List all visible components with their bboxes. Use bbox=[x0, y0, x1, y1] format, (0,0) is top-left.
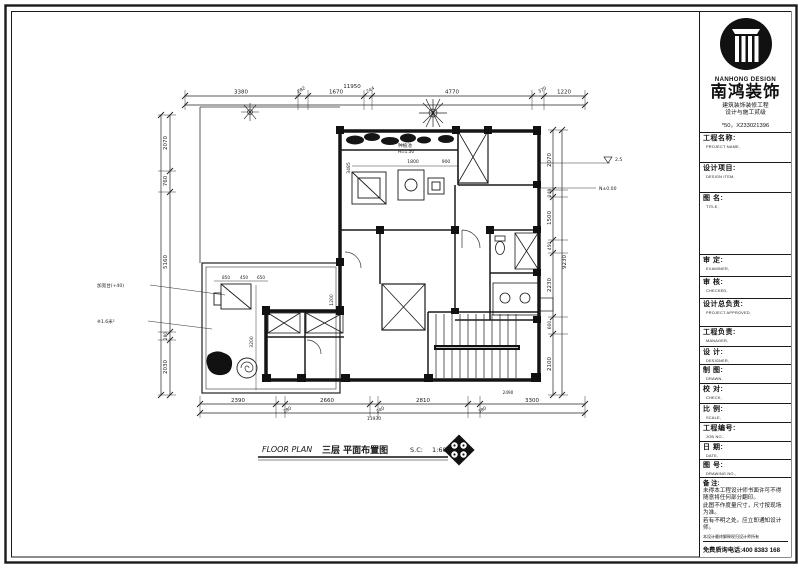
field-label-en: CHECKED, bbox=[706, 288, 788, 293]
terrace-plants bbox=[207, 351, 258, 378]
dim-label: 280 bbox=[163, 332, 169, 341]
field-label-cn: 工程名称: bbox=[703, 135, 788, 143]
dim-label: 2230 bbox=[547, 278, 553, 292]
dim-label: 1220 bbox=[557, 90, 571, 96]
dim-label: 1200 bbox=[329, 294, 335, 306]
field-label-cn: 设计总负责: bbox=[703, 301, 788, 309]
dim-label: 2100 bbox=[547, 357, 553, 371]
field-label-en: TITLE, bbox=[706, 204, 788, 209]
field-label-cn: 工程编号: bbox=[703, 425, 788, 433]
field-project-name: 工程名称: PROJECT NAME, bbox=[700, 133, 791, 163]
note-line: 为准。 bbox=[703, 510, 788, 517]
notes-title: 备 注: bbox=[703, 480, 788, 488]
field-label-en: EXAMINER, bbox=[706, 266, 788, 271]
dim-label-overall: 11950 bbox=[343, 84, 361, 90]
note-line: 师。 bbox=[703, 525, 788, 532]
dim-label: 600 bbox=[547, 321, 553, 330]
field-label-cn: 工程负责: bbox=[703, 329, 788, 337]
bathroom-fixtures bbox=[493, 233, 553, 315]
cert-line-2: 设计与施工贰级 bbox=[700, 110, 791, 117]
field-label-cn: 设 计: bbox=[703, 349, 788, 357]
hotline-phone: 免费质询电话:400 8383 168 bbox=[703, 541, 788, 555]
dim-labels-right: 2070 240 1500 450 2230 600 2100 9230 bbox=[547, 153, 568, 371]
dim-label: 280 bbox=[282, 405, 293, 415]
tree-symbol-small bbox=[241, 103, 259, 121]
annotation-planter-level: H=1.50 bbox=[398, 149, 414, 154]
field-designer: 设 计: DESIGNER, bbox=[700, 347, 791, 365]
dim-label: 450 bbox=[240, 275, 248, 280]
dim-label: 2660 bbox=[320, 398, 334, 404]
title-block: NANHONG DESIGN 南鸿装饰 建筑装饰装修工程 设计与施工贰级 *50… bbox=[699, 12, 791, 557]
field-label-cn: 审 核: bbox=[703, 279, 788, 287]
field-design-item: 设计项目: DESIGN ITEM, bbox=[700, 163, 791, 193]
dim-label: 850 bbox=[222, 275, 230, 280]
logo-section: NANHONG DESIGN 南鸿装饰 建筑装饰装修工程 设计与施工贰级 *50… bbox=[700, 12, 791, 133]
dim-labels-left: 2070 760 5160 280 2030 bbox=[163, 136, 169, 374]
field-label-cn: 设计项目: bbox=[703, 165, 788, 173]
dim-label: 2390 bbox=[231, 398, 245, 404]
field-examiner: 审 定: EXAMINER, bbox=[700, 255, 791, 277]
note-line: 随意将任何部分翻印。 bbox=[703, 495, 788, 502]
field-label-en: DRAWN, bbox=[706, 376, 788, 381]
notes-fine-print: 本设计最终解释权归设计师所有 bbox=[703, 534, 788, 540]
dim-label: 3300 bbox=[525, 398, 539, 404]
note-line: 若有不明之处。应立即通知设计 bbox=[703, 518, 788, 525]
annotation-left-1: 加宽台(+40) bbox=[97, 282, 124, 289]
dim-label: 282 bbox=[296, 85, 307, 95]
eave-lines bbox=[200, 107, 340, 263]
tree-symbol-large bbox=[419, 99, 447, 127]
annotation-level-1: 2.5 bbox=[615, 157, 622, 163]
drawing-sheet: 3380 282 1670 244 4770 370 1220 11950 20… bbox=[0, 0, 802, 568]
dim-labels-top: 3380 282 1670 244 4770 370 1220 11950 bbox=[234, 84, 571, 96]
dim-label: 900 bbox=[442, 159, 451, 165]
dim-label: 380 bbox=[477, 405, 488, 415]
annotation-level-2: N±0.00 bbox=[599, 186, 617, 192]
field-manager: 工程负责: MANAGER, bbox=[700, 327, 791, 347]
dim-labels-bottom: 2390 280 2660 240 2810 380 3300 11930 bbox=[231, 398, 539, 422]
caption-title: 三层 平面布置图 bbox=[322, 444, 388, 456]
staircase bbox=[434, 314, 520, 378]
dim-label: 2070 bbox=[547, 153, 553, 167]
field-checked: 审 核: CHECKED, bbox=[700, 277, 791, 299]
field-label-cn: 图 名: bbox=[703, 195, 788, 203]
dim-label: 3485 bbox=[346, 162, 352, 174]
field-label-en: CHECK, bbox=[706, 395, 788, 400]
field-label-cn: 校 对: bbox=[703, 386, 788, 394]
field-label-en: PROJECT NAME, bbox=[706, 144, 788, 149]
field-job-no: 工程编号: JOB NO., bbox=[700, 423, 791, 442]
terrace-desk bbox=[214, 284, 251, 309]
dim-label: 3200 bbox=[249, 336, 255, 348]
interior-walls bbox=[266, 131, 539, 380]
dim-label: 650 bbox=[257, 275, 265, 280]
annotations: 加宽台(+40) ※1.6米² 2.5 N±0.00 种植池 H=1.50 bbox=[97, 142, 622, 329]
dim-label: 2490 bbox=[503, 390, 514, 395]
dim-label: 5160 bbox=[163, 255, 169, 269]
exterior-walls bbox=[266, 131, 539, 380]
door-swings bbox=[307, 230, 480, 354]
field-drawing-no: 图 号: DRAWING NO., bbox=[700, 460, 791, 478]
dim-label-overall: 11930 bbox=[367, 416, 381, 422]
shaft-elevator bbox=[458, 131, 488, 183]
dim-label: 2810 bbox=[416, 398, 430, 404]
field-label-cn: 图 号: bbox=[703, 462, 788, 470]
caption-prefix: FLOOR PLAN bbox=[262, 445, 312, 454]
plan-caption: FLOOR PLAN 三层 平面布置图 S.C: 1:60 bbox=[258, 434, 475, 465]
field-label-en: DESIGN ITEM, bbox=[706, 174, 788, 179]
brand-name-cn: 南鸿装饰 bbox=[700, 83, 791, 101]
field-label-en: MANAGER, bbox=[706, 338, 788, 343]
dim-label: 1670 bbox=[329, 90, 343, 96]
field-label-cn: 审 定: bbox=[703, 257, 788, 265]
field-project-approved: 设计总负责: PROJECT APPROVED, bbox=[700, 299, 791, 327]
field-label-en: DESIGNER, bbox=[706, 358, 788, 363]
dim-label: 2070 bbox=[163, 136, 169, 150]
field-label-en: PROJECT APPROVED, bbox=[706, 310, 788, 315]
field-title: 图 名: TITLE, bbox=[700, 193, 791, 255]
dim-label: 3380 bbox=[234, 90, 248, 96]
dim-label: 760 bbox=[163, 175, 169, 186]
field-label-cn: 比 例: bbox=[703, 406, 788, 414]
field-label-en: DATE, bbox=[706, 453, 788, 458]
field-check: 校 对: CHECK, bbox=[700, 384, 791, 404]
dim-label: 450 bbox=[547, 242, 553, 251]
shaft-duct bbox=[382, 284, 425, 330]
dim-label: 1500 bbox=[547, 211, 553, 225]
notes-section: 备 注: 未得本工程设计师书面许可不得 随意将任何部分翻印。 此图不作度量尺寸，… bbox=[700, 478, 791, 557]
cert-line-1: 建筑装饰装修工程 bbox=[700, 103, 791, 110]
dim-label: 2030 bbox=[163, 360, 169, 374]
field-label-cn: 日 期: bbox=[703, 444, 788, 452]
field-label-en: JOB NO., bbox=[706, 434, 788, 439]
field-label-en: SCALE, bbox=[706, 415, 788, 420]
floor-plan-drawing: 3380 282 1670 244 4770 370 1220 11950 20… bbox=[0, 0, 802, 568]
dim-label: 1800 bbox=[407, 159, 419, 165]
caption-ornament-icon bbox=[443, 434, 474, 465]
dim-label: 240 bbox=[375, 405, 386, 415]
dim-label: 4770 bbox=[445, 90, 459, 96]
field-label-en: DRAWING NO., bbox=[706, 471, 788, 476]
field-drawn: 制 图: DRAWN, bbox=[700, 365, 791, 384]
furniture-top bbox=[352, 170, 444, 204]
field-date: 日 期: DATE, bbox=[700, 442, 791, 460]
nanhong-logo-icon bbox=[719, 17, 773, 71]
field-scale: 比 例: SCALE, bbox=[700, 404, 791, 423]
dim-label: 240 bbox=[547, 189, 553, 198]
field-label-cn: 制 图: bbox=[703, 367, 788, 375]
dim-label-overall: 9230 bbox=[562, 255, 568, 269]
caption-scale-label: S.C: bbox=[410, 446, 423, 454]
annotation-planter: 种植池 bbox=[398, 142, 412, 149]
cert-number: *50，X233021396 bbox=[700, 120, 791, 129]
annotation-left-2: ※1.6米² bbox=[97, 318, 115, 325]
